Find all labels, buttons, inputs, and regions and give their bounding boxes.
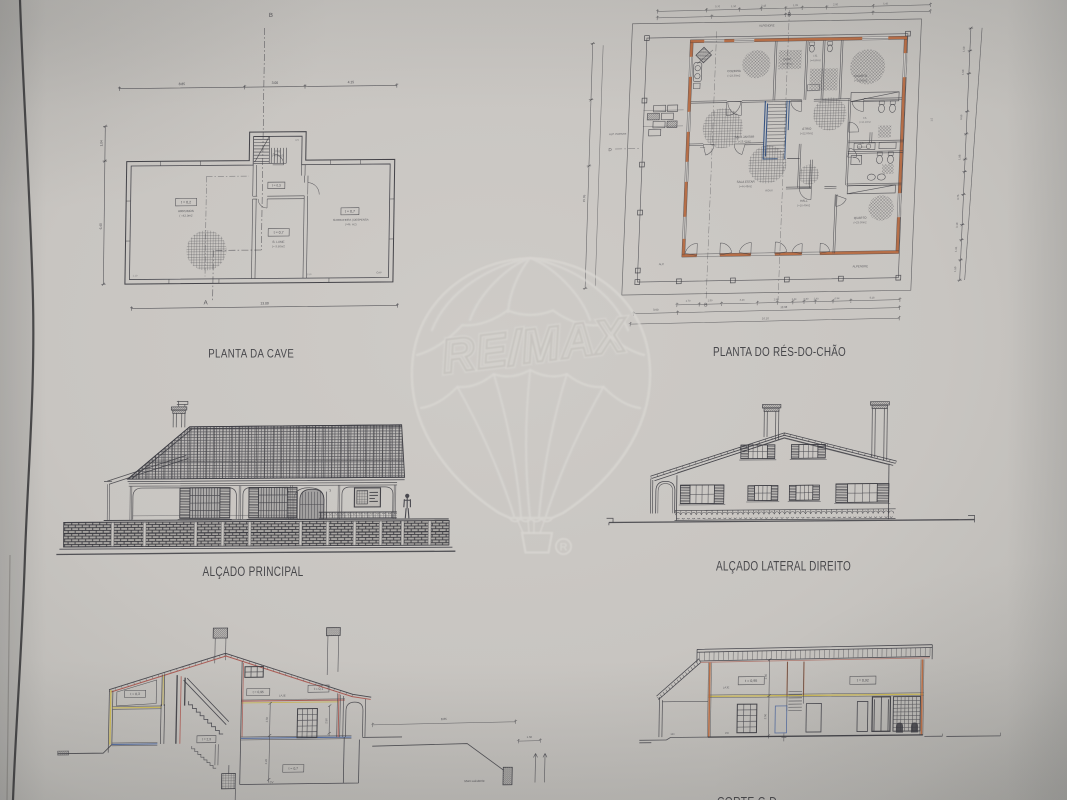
svg-text:3.10: 3.10 xyxy=(955,222,959,228)
svg-text:(=25.42m2: (=25.42m2 xyxy=(738,139,752,143)
svg-text:2.50: 2.50 xyxy=(265,717,269,723)
svg-text:1.98: 1.98 xyxy=(774,298,780,301)
svg-text:Muro existente: Muro existente xyxy=(464,779,485,783)
svg-text:3.90: 3.90 xyxy=(653,308,659,312)
svg-text:'3: '3 xyxy=(329,489,332,493)
svg-text:1.98: 1.98 xyxy=(957,154,961,160)
svg-text:QUARTO: QUARTO xyxy=(854,216,868,220)
svg-text:ALPENDRE: ALPENDRE xyxy=(852,264,868,268)
svg-text:2.60: 2.60 xyxy=(764,673,768,679)
svg-text:(=10.40m2: (=10.40m2 xyxy=(859,121,871,124)
svg-text:I.S.: I.S. xyxy=(860,141,864,145)
svg-text:COZINHA: COZINHA xyxy=(727,69,741,73)
svg-text:1.5: 1.5 xyxy=(295,138,299,142)
svg-text:GARRAFEIRA | DESPENSA: GARRAFEIRA | DESPENSA xyxy=(333,218,369,222)
svg-text:t = 0,95: t = 0,95 xyxy=(253,690,264,694)
svg-text:ALPENDRE: ALPENDRE xyxy=(759,23,775,27)
svg-text:t = 0,7: t = 0,7 xyxy=(345,210,355,214)
svg-text:B. LUME: B. LUME xyxy=(272,240,284,244)
svg-text:1.50: 1.50 xyxy=(527,735,533,739)
svg-text:A: A xyxy=(204,300,208,306)
svg-text:ALÇADO PRINCIPAL: ALÇADO PRINCIPAL xyxy=(203,564,304,579)
svg-text:3.53: 3.53 xyxy=(959,114,963,120)
svg-text:1.50: 1.50 xyxy=(731,4,737,8)
svg-text:1.05: 1.05 xyxy=(793,3,799,7)
svg-text:t = 0,1: t = 0,1 xyxy=(314,687,324,691)
svg-text:HALL: HALL xyxy=(800,199,808,203)
svg-text:150: 150 xyxy=(725,732,730,735)
svg-text:t = 0,3: t = 0,3 xyxy=(130,692,140,696)
svg-text:PLANTA DA CAVE: PLANTA DA CAVE xyxy=(208,347,294,361)
svg-text:1.50: 1.50 xyxy=(961,69,965,75)
svg-text:ALP. POENTE: ALP. POENTE xyxy=(609,132,627,136)
svg-text:1.31: 1.31 xyxy=(954,246,958,252)
svg-text:(=46. m2): (=46. m2) xyxy=(345,222,357,226)
svg-text:16.10: 16.10 xyxy=(762,316,770,320)
svg-text:CORTE C-D: CORTE C-D xyxy=(717,794,777,800)
svg-text:t = 0,3: t = 0,3 xyxy=(272,183,281,187)
svg-text:DESP.: DESP. xyxy=(783,57,791,61)
svg-text:2.00: 2.00 xyxy=(833,2,839,6)
svg-text:PLANTA DO RÉS-DO-CHÃO: PLANTA DO RÉS-DO-CHÃO xyxy=(713,344,846,359)
svg-text:PRE: PRE xyxy=(275,149,281,153)
svg-text:1.50: 1.50 xyxy=(307,273,312,276)
svg-text:4.15: 4.15 xyxy=(348,80,355,84)
svg-text:SALA ESTAR: SALA ESTAR xyxy=(737,180,756,184)
svg-text:t = 2,3: t = 2,3 xyxy=(202,737,211,741)
svg-text:LAJE: LAJE xyxy=(723,685,730,689)
svg-text:QUARTO: QUARTO xyxy=(854,74,868,78)
svg-text:1.40: 1.40 xyxy=(814,297,820,300)
svg-text:(=6.99m2: (=6.99m2 xyxy=(857,146,868,149)
svg-text:2.50: 2.50 xyxy=(324,718,328,724)
svg-text:B: B xyxy=(787,12,791,18)
svg-text:(=13.60m2: (=13.60m2 xyxy=(854,78,868,82)
svg-text:1.70: 1.70 xyxy=(686,300,692,303)
svg-text:15.05: 15.05 xyxy=(582,194,586,202)
svg-text:t = 0,2: t = 0,2 xyxy=(181,200,191,204)
svg-text:(= 9.50m2: (= 9.50m2 xyxy=(272,244,285,248)
svg-text:2.20: 2.20 xyxy=(264,759,268,765)
svg-text:2.50: 2.50 xyxy=(763,713,767,719)
svg-text:t = 0,92: t = 0,92 xyxy=(857,678,869,682)
svg-text:1.50: 1.50 xyxy=(962,46,966,52)
svg-text:SALA JANTAR: SALA JANTAR xyxy=(734,135,755,139)
svg-text:1.5: 1.5 xyxy=(929,117,933,121)
svg-text:t = 0,7: t = 0,7 xyxy=(274,231,284,235)
svg-text:B: B xyxy=(269,13,273,19)
svg-text:150: 150 xyxy=(670,733,675,736)
svg-text:(=22.00m2: (=22.00m2 xyxy=(800,131,814,135)
svg-text:4.75: 4.75 xyxy=(956,194,960,200)
svg-text:(=7.00m2: (=7.00m2 xyxy=(782,63,793,66)
svg-text:1.50: 1.50 xyxy=(953,266,957,272)
svg-text:(=23.00m2: (=23.00m2 xyxy=(853,220,867,224)
svg-text:t = 0,95: t = 0,95 xyxy=(745,679,757,683)
svg-text:ROUP.: ROUP. xyxy=(765,188,773,192)
svg-text:1.10: 1.10 xyxy=(133,274,138,277)
svg-text:0.94: 0.94 xyxy=(835,297,841,300)
svg-text:I.S.: I.S. xyxy=(863,116,867,120)
svg-text:0.70: 0.70 xyxy=(715,4,721,8)
svg-text:3.00: 3.00 xyxy=(272,81,279,85)
svg-text:13.00: 13.00 xyxy=(260,301,269,305)
svg-text:3.43: 3.43 xyxy=(740,299,746,302)
svg-text:8.85: 8.85 xyxy=(179,82,186,86)
svg-text:LAJE: LAJE xyxy=(279,693,286,697)
svg-text:1.04: 1.04 xyxy=(99,140,103,146)
svg-text:(=4.80m2: (=4.80m2 xyxy=(810,59,821,62)
svg-text:(=44.45m2: (=44.45m2 xyxy=(739,184,753,188)
svg-text:t = 0,7: t = 0,7 xyxy=(289,767,299,771)
svg-text:8.85: 8.85 xyxy=(441,717,447,721)
svg-text:1.44: 1.44 xyxy=(792,298,798,301)
svg-text:(=10.40m2: (=10.40m2 xyxy=(797,203,811,207)
svg-text:CAP: CAP xyxy=(376,271,382,275)
svg-text:5.45: 5.45 xyxy=(883,2,889,6)
svg-text:CV: CV xyxy=(270,780,274,784)
svg-text:0.80: 0.80 xyxy=(804,298,810,301)
svg-text:2.43: 2.43 xyxy=(761,4,767,8)
svg-text:( =42.0m2: ( =42.0m2 xyxy=(179,214,193,218)
svg-text:ALP.: ALP. xyxy=(659,262,665,266)
svg-text:ARRUMOS: ARRUMOS xyxy=(178,209,194,213)
svg-text:(=23.30m2: (=23.30m2 xyxy=(727,73,741,77)
svg-text:(=4.05m2): (=4.05m2) xyxy=(272,153,284,157)
svg-text:R: R xyxy=(560,542,568,554)
svg-text:6.40: 6.40 xyxy=(99,223,103,229)
svg-text:I.S.: I.S. xyxy=(813,54,818,58)
svg-text:1.50: 1.50 xyxy=(708,299,714,302)
svg-text:ALÇADO LATERAL DIREITO: ALÇADO LATERAL DIREITO xyxy=(716,559,851,574)
svg-text:5.28: 5.28 xyxy=(870,297,876,300)
svg-text:13.08: 13.08 xyxy=(780,305,788,309)
svg-text:ÁTRIO: ÁTRIO xyxy=(802,127,812,131)
